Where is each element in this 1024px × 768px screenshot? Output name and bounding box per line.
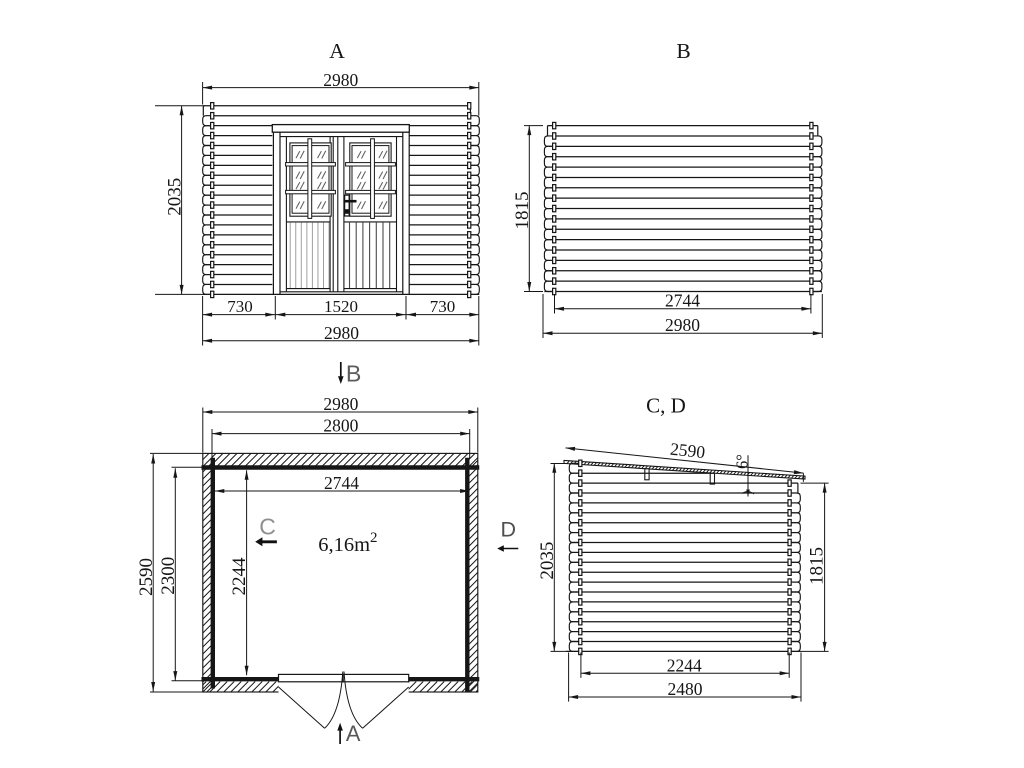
- svg-text:2800: 2800: [323, 416, 358, 436]
- svg-text:2590: 2590: [669, 439, 706, 463]
- svg-text:730: 730: [227, 297, 253, 316]
- svg-text:D: D: [501, 518, 517, 542]
- svg-text:B: B: [676, 39, 690, 63]
- svg-text:1815: 1815: [807, 547, 828, 585]
- svg-text:6°: 6°: [733, 454, 752, 469]
- svg-text:730: 730: [430, 297, 456, 316]
- svg-text:2744: 2744: [665, 291, 700, 311]
- svg-text:2244: 2244: [229, 557, 250, 596]
- svg-text:2980: 2980: [665, 315, 700, 335]
- svg-text:C, D: C, D: [646, 394, 686, 418]
- svg-text:6,16m2: 6,16m2: [318, 530, 377, 556]
- svg-text:2035: 2035: [537, 542, 558, 580]
- svg-text:2035: 2035: [164, 178, 185, 216]
- svg-text:B: B: [346, 361, 361, 387]
- svg-text:C: C: [259, 513, 276, 539]
- svg-text:2980: 2980: [323, 394, 358, 414]
- svg-text:1520: 1520: [324, 297, 358, 316]
- svg-text:A: A: [329, 39, 345, 63]
- svg-text:2244: 2244: [667, 655, 702, 675]
- svg-text:1815: 1815: [512, 192, 533, 230]
- svg-text:2980: 2980: [324, 323, 359, 343]
- svg-text:A: A: [346, 721, 361, 746]
- svg-text:2590: 2590: [136, 558, 157, 596]
- svg-text:2980: 2980: [323, 70, 358, 90]
- svg-text:2300: 2300: [158, 557, 179, 595]
- svg-text:2744: 2744: [324, 473, 359, 493]
- svg-text:2480: 2480: [668, 679, 703, 699]
